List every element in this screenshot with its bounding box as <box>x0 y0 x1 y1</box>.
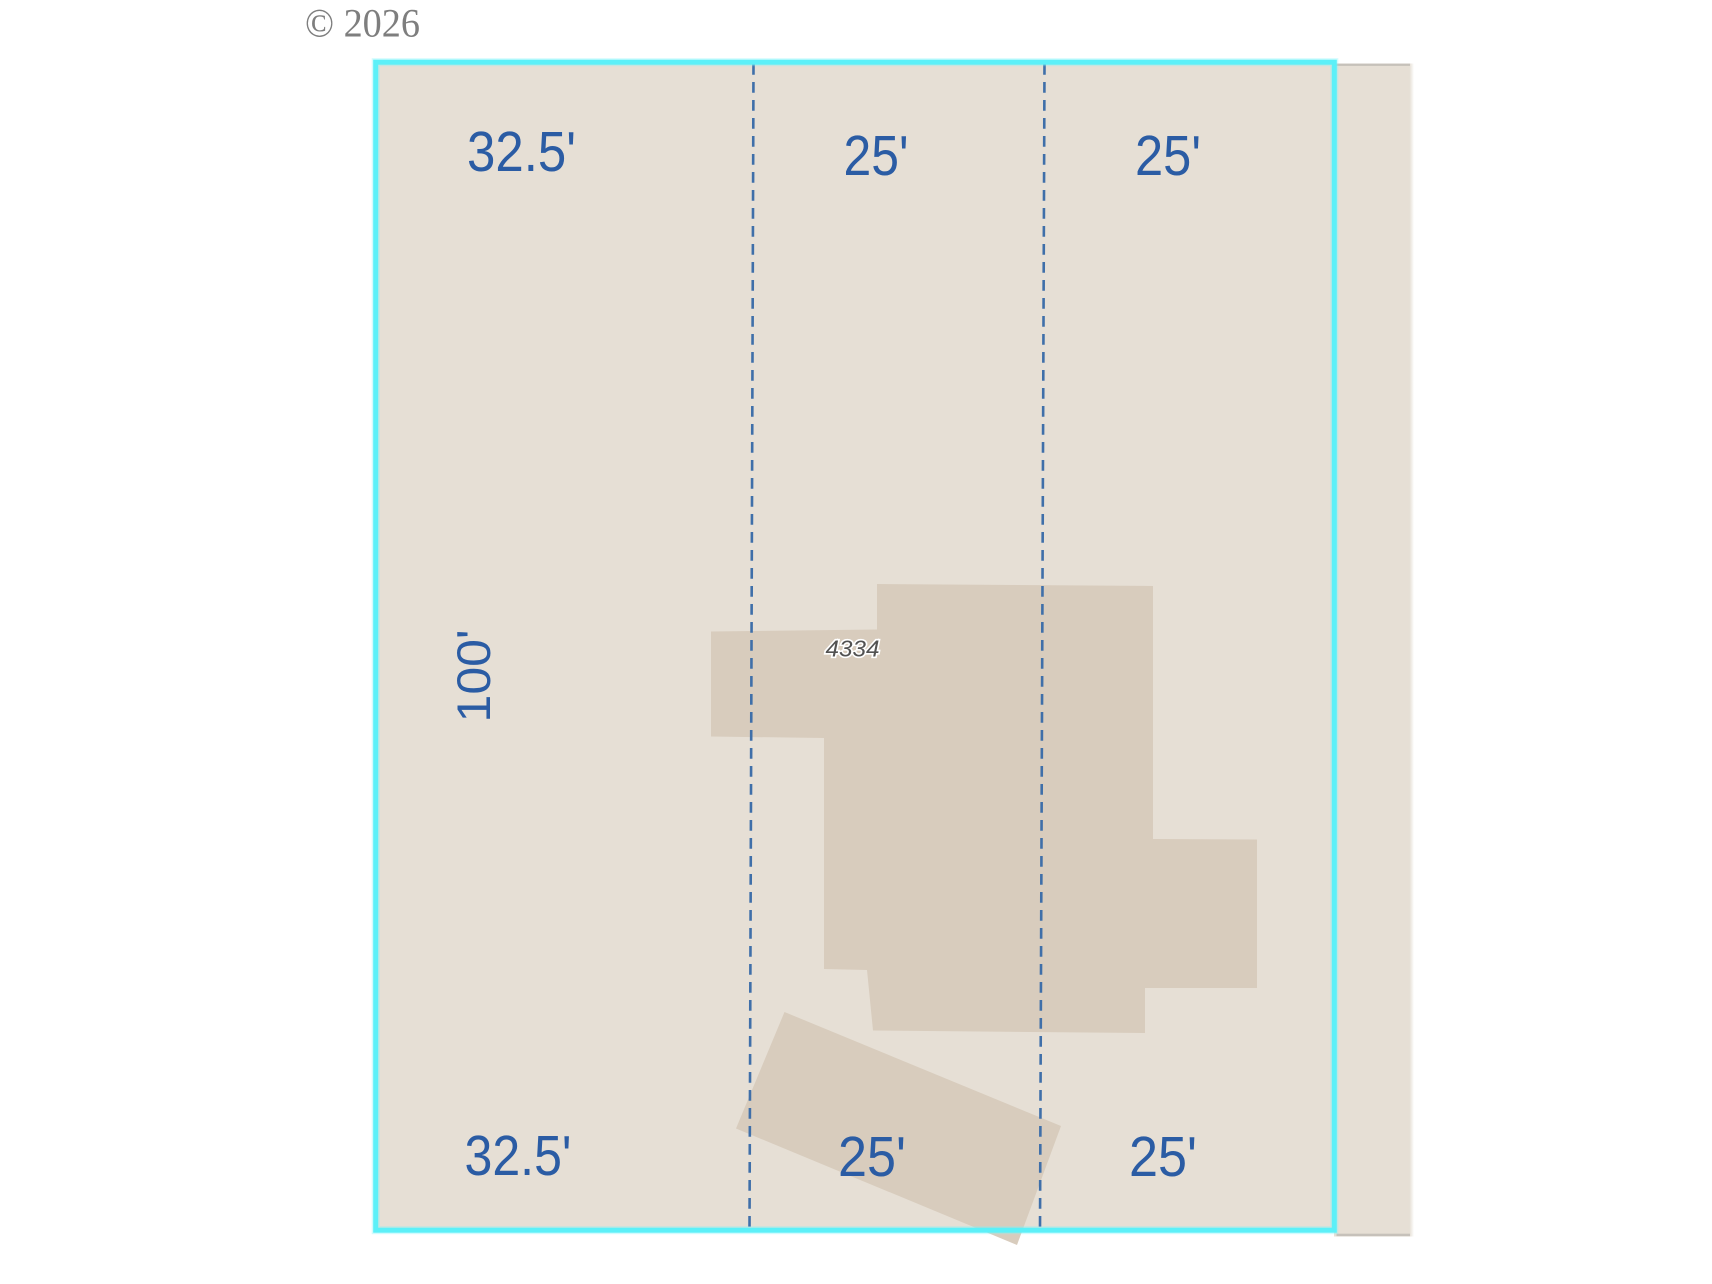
svg-text:100': 100' <box>447 630 500 723</box>
svg-text:25': 25' <box>838 1125 906 1189</box>
svg-text:25': 25' <box>1135 124 1201 188</box>
svg-text:32.5': 32.5' <box>467 120 576 184</box>
svg-text:4334: 4334 <box>826 636 880 662</box>
svg-text:25': 25' <box>1129 1125 1197 1189</box>
svg-text:25': 25' <box>844 124 909 188</box>
svg-text:32.5': 32.5' <box>465 1124 572 1188</box>
svg-text:© 2026: © 2026 <box>305 1 420 46</box>
